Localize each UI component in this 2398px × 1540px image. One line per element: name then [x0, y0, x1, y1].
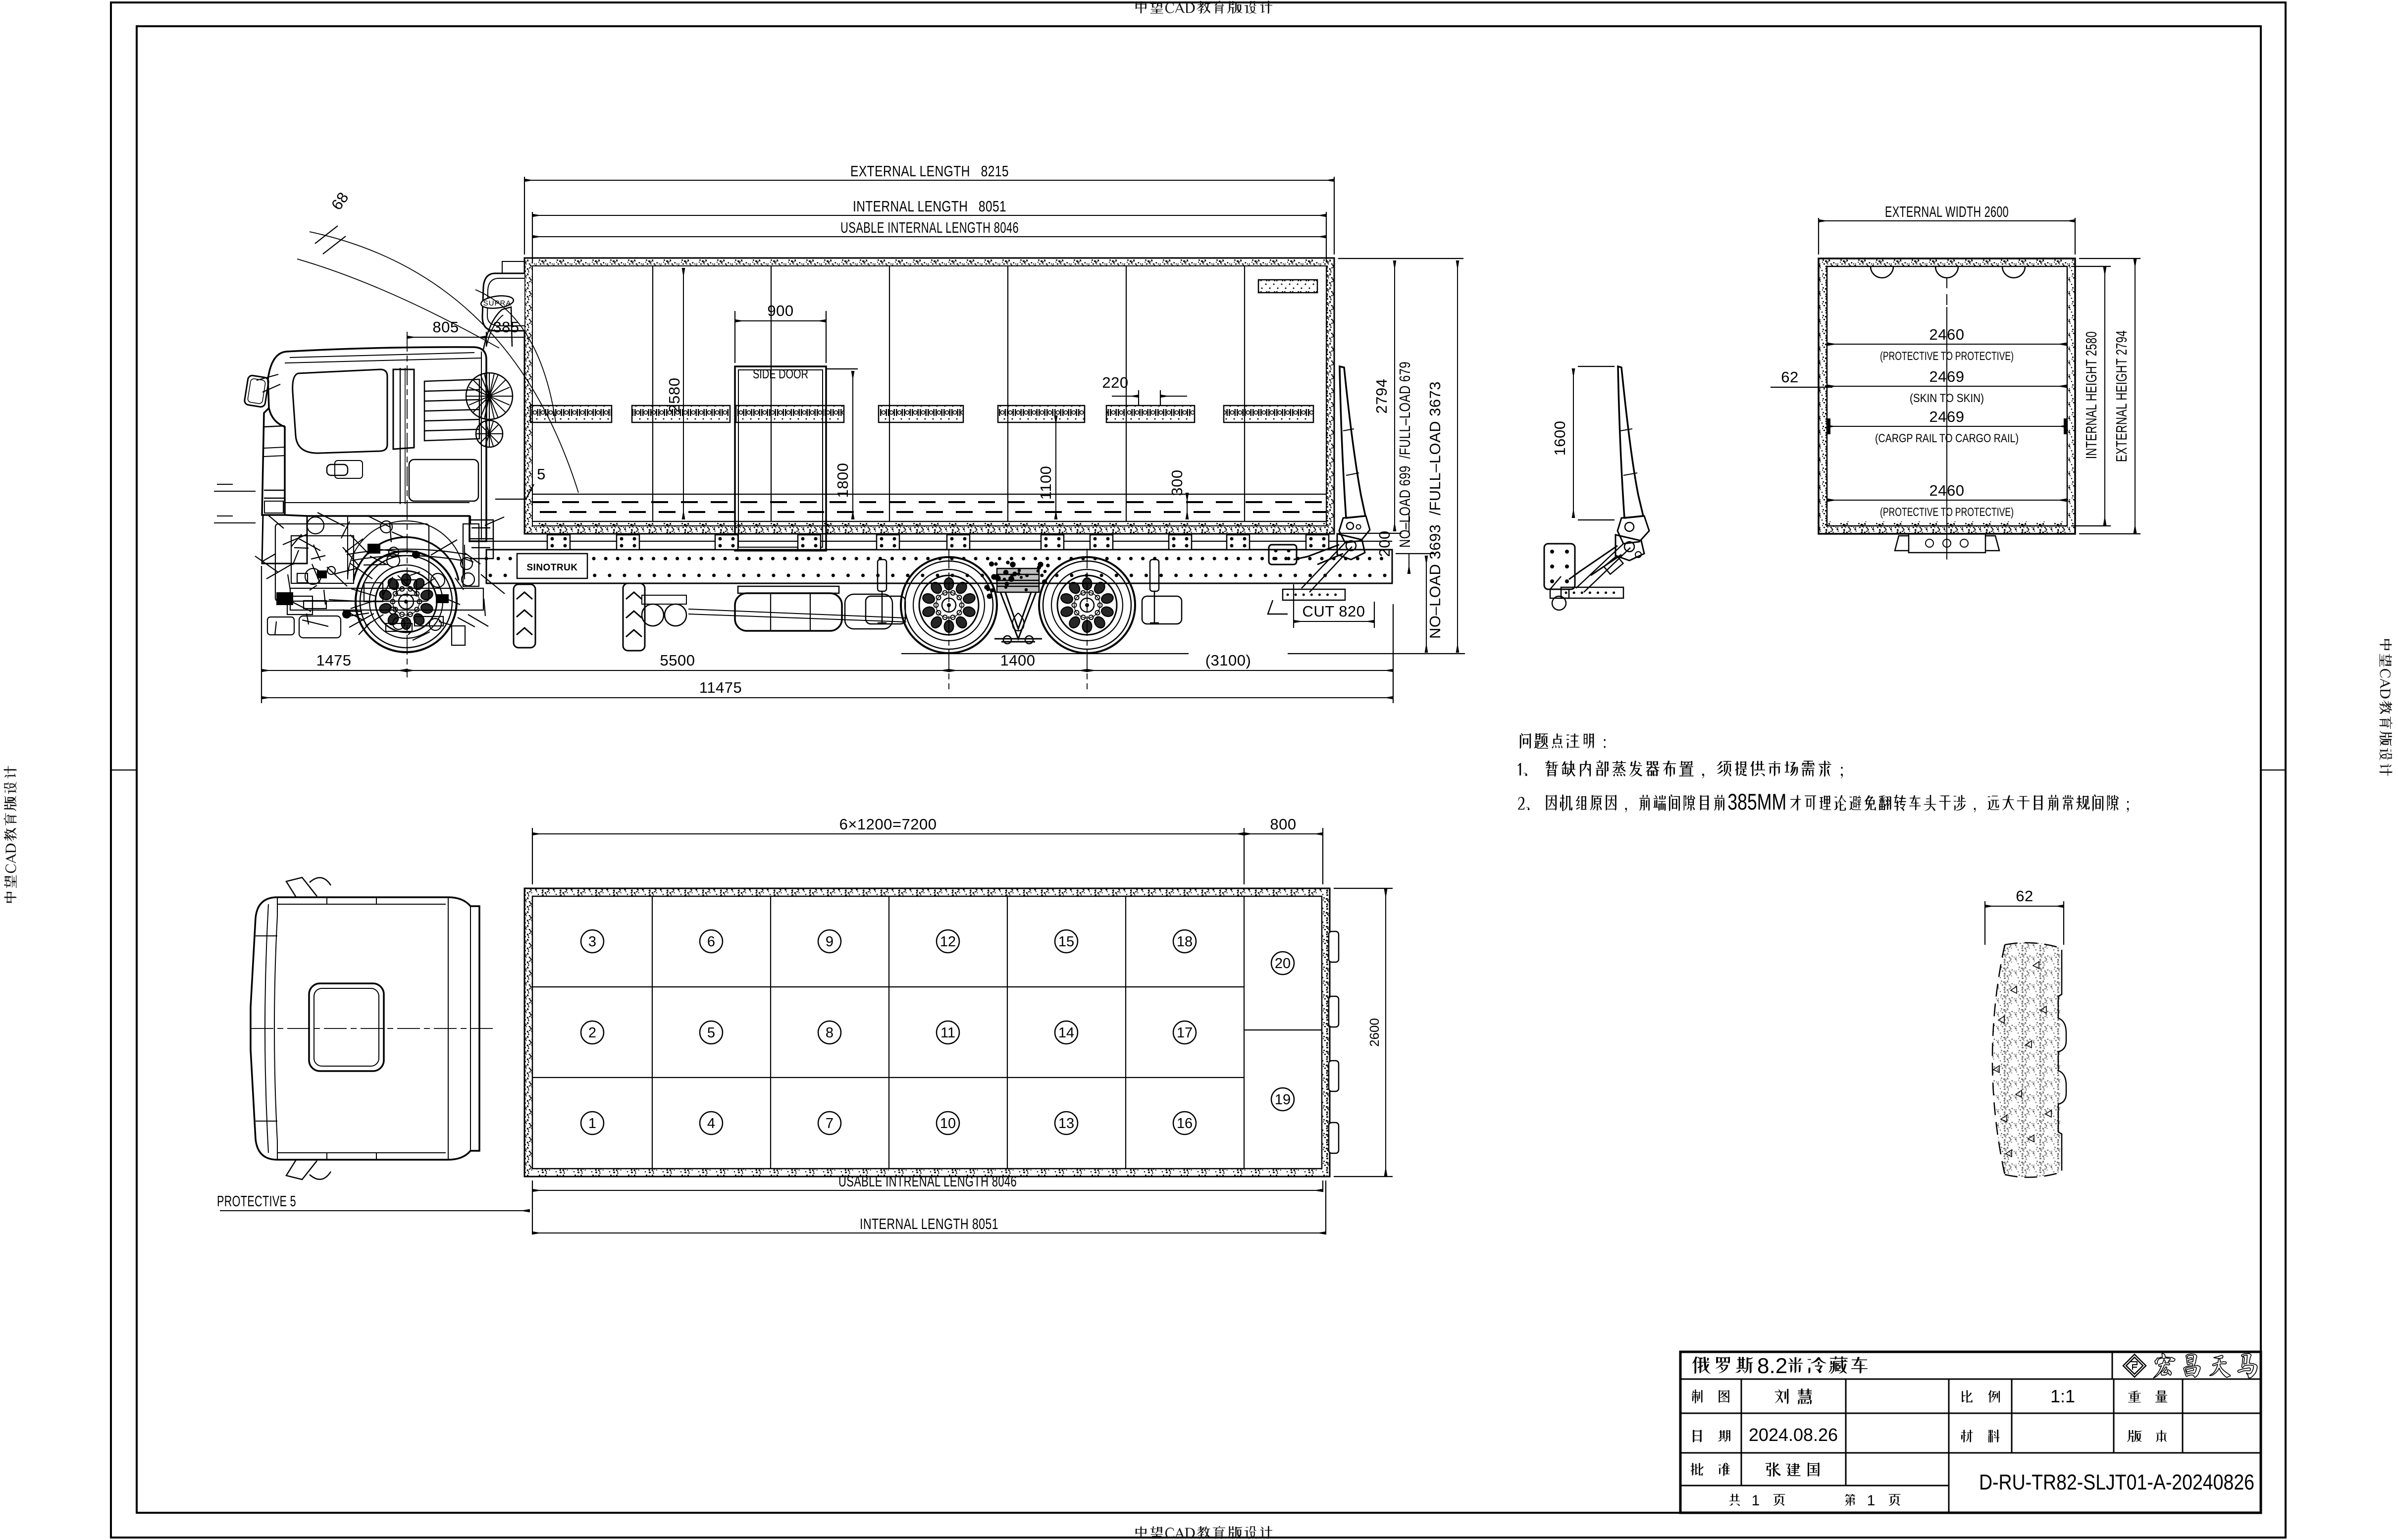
svg-text:9: 9 [826, 934, 834, 950]
svg-text:2469: 2469 [1929, 368, 1965, 385]
svg-text:2580: 2580 [666, 378, 683, 413]
svg-text:2600: 2600 [1367, 1018, 1382, 1047]
svg-text:PROTECTIVE 5: PROTECTIVE 5 [217, 1192, 296, 1210]
svg-text:62: 62 [2016, 887, 2033, 905]
svg-text:2024.08.26: 2024.08.26 [1749, 1425, 1838, 1445]
svg-text:4: 4 [707, 1116, 715, 1131]
svg-text:D-RU-TR82-SLJT01-A-20240826: D-RU-TR82-SLJT01-A-20240826 [1979, 1470, 2254, 1494]
svg-text:16: 16 [1177, 1116, 1193, 1131]
svg-text:NO–LOAD 3693 /FULL–LOAD 3673: NO–LOAD 3693 /FULL–LOAD 3673 [1426, 381, 1444, 639]
svg-text:800: 800 [1270, 816, 1296, 833]
svg-text:220: 220 [1102, 374, 1128, 391]
svg-text:18: 18 [1177, 934, 1193, 950]
svg-text:10: 10 [940, 1116, 956, 1131]
svg-text:8: 8 [826, 1025, 834, 1041]
svg-text:6×1200=7200: 6×1200=7200 [839, 816, 937, 833]
svg-text:INTERNAL HEIGHT 2580: INTERNAL HEIGHT 2580 [2083, 331, 2100, 459]
svg-text:62: 62 [1781, 368, 1798, 386]
svg-text:USABLE INTRENAL LENGTH 8046: USABLE INTRENAL LENGTH 8046 [838, 1173, 1017, 1190]
svg-text:(SKIN TO SKIN): (SKIN TO SKIN) [1910, 392, 1984, 405]
svg-text:(3100): (3100) [1205, 652, 1251, 669]
svg-text:1600: 1600 [1551, 421, 1568, 456]
svg-text:EXTERNAL WIDTH 2600: EXTERNAL WIDTH 2600 [1885, 203, 2009, 220]
svg-text:5: 5 [707, 1025, 715, 1041]
svg-text:1400: 1400 [1000, 652, 1036, 669]
svg-text:1100: 1100 [1037, 466, 1054, 500]
svg-text:12: 12 [940, 934, 956, 950]
svg-text:SIDE DOOR: SIDE DOOR [753, 366, 808, 381]
svg-text:1800: 1800 [834, 463, 851, 498]
svg-text:805: 805 [432, 318, 459, 336]
svg-text:3: 3 [588, 934, 596, 950]
svg-text:17: 17 [1177, 1025, 1193, 1041]
svg-text:11475: 11475 [699, 679, 742, 696]
svg-text:1: 1 [588, 1116, 596, 1131]
svg-text:200: 200 [1376, 530, 1393, 557]
svg-text:2460: 2460 [1929, 482, 1965, 499]
svg-text:8.2: 8.2 [1757, 1354, 1787, 1378]
svg-text:1: 1 [1752, 1492, 1760, 1509]
svg-text:NO–LOAD 699 /FULL–LOAD 679: NO–LOAD 699 /FULL–LOAD 679 [1396, 361, 1413, 548]
svg-text:(CARGP RAIL TO CARGO RAIL): (CARGP RAIL TO CARGO RAIL) [1875, 432, 2019, 445]
svg-text:2: 2 [588, 1025, 596, 1041]
svg-text:2460: 2460 [1929, 326, 1965, 343]
svg-text:5: 5 [537, 465, 546, 483]
svg-text:INTERNAL LENGTH 8051: INTERNAL LENGTH 8051 [860, 1215, 998, 1232]
svg-text:(PROTECTIVE TO PROTECTIVE): (PROTECTIVE TO PROTECTIVE) [1880, 350, 2014, 363]
svg-text:2794: 2794 [1373, 379, 1390, 414]
svg-text:300: 300 [1168, 469, 1186, 496]
svg-text:EXTERNAL LENGTH 8215: EXTERNAL LENGTH 8215 [850, 162, 1009, 180]
svg-text:SINOTRUK: SINOTRUK [526, 563, 577, 573]
svg-text:13: 13 [1058, 1116, 1074, 1131]
svg-text:2469: 2469 [1929, 408, 1965, 425]
svg-text:900: 900 [767, 302, 793, 319]
svg-text:7: 7 [826, 1116, 834, 1131]
svg-text:20: 20 [1275, 956, 1291, 972]
svg-text:EXTERNAL HEIGHT 2794: EXTERNAL HEIGHT 2794 [2113, 330, 2130, 462]
svg-text:USABLE INTERNAL LENGTH 8046: USABLE INTERNAL LENGTH 8046 [840, 219, 1019, 236]
svg-text:(PROTECTIVE TO PROTECTIVE): (PROTECTIVE TO PROTECTIVE) [1880, 506, 2014, 519]
svg-text:14: 14 [1058, 1025, 1074, 1041]
svg-text:6: 6 [707, 934, 715, 950]
svg-text:SUPRA: SUPRA [483, 299, 512, 308]
svg-text:1:1: 1:1 [2050, 1386, 2075, 1406]
svg-text:1: 1 [1867, 1492, 1876, 1509]
svg-text:385: 385 [493, 318, 519, 336]
svg-text:INTERNAL LENGTH 8051: INTERNAL LENGTH 8051 [853, 198, 1006, 215]
svg-text:CUT 820: CUT 820 [1303, 603, 1365, 620]
svg-text:19: 19 [1275, 1092, 1291, 1108]
svg-text:11: 11 [940, 1025, 955, 1041]
svg-text:1475: 1475 [316, 652, 352, 669]
svg-text:5500: 5500 [660, 652, 695, 669]
svg-text:15: 15 [1058, 934, 1074, 950]
